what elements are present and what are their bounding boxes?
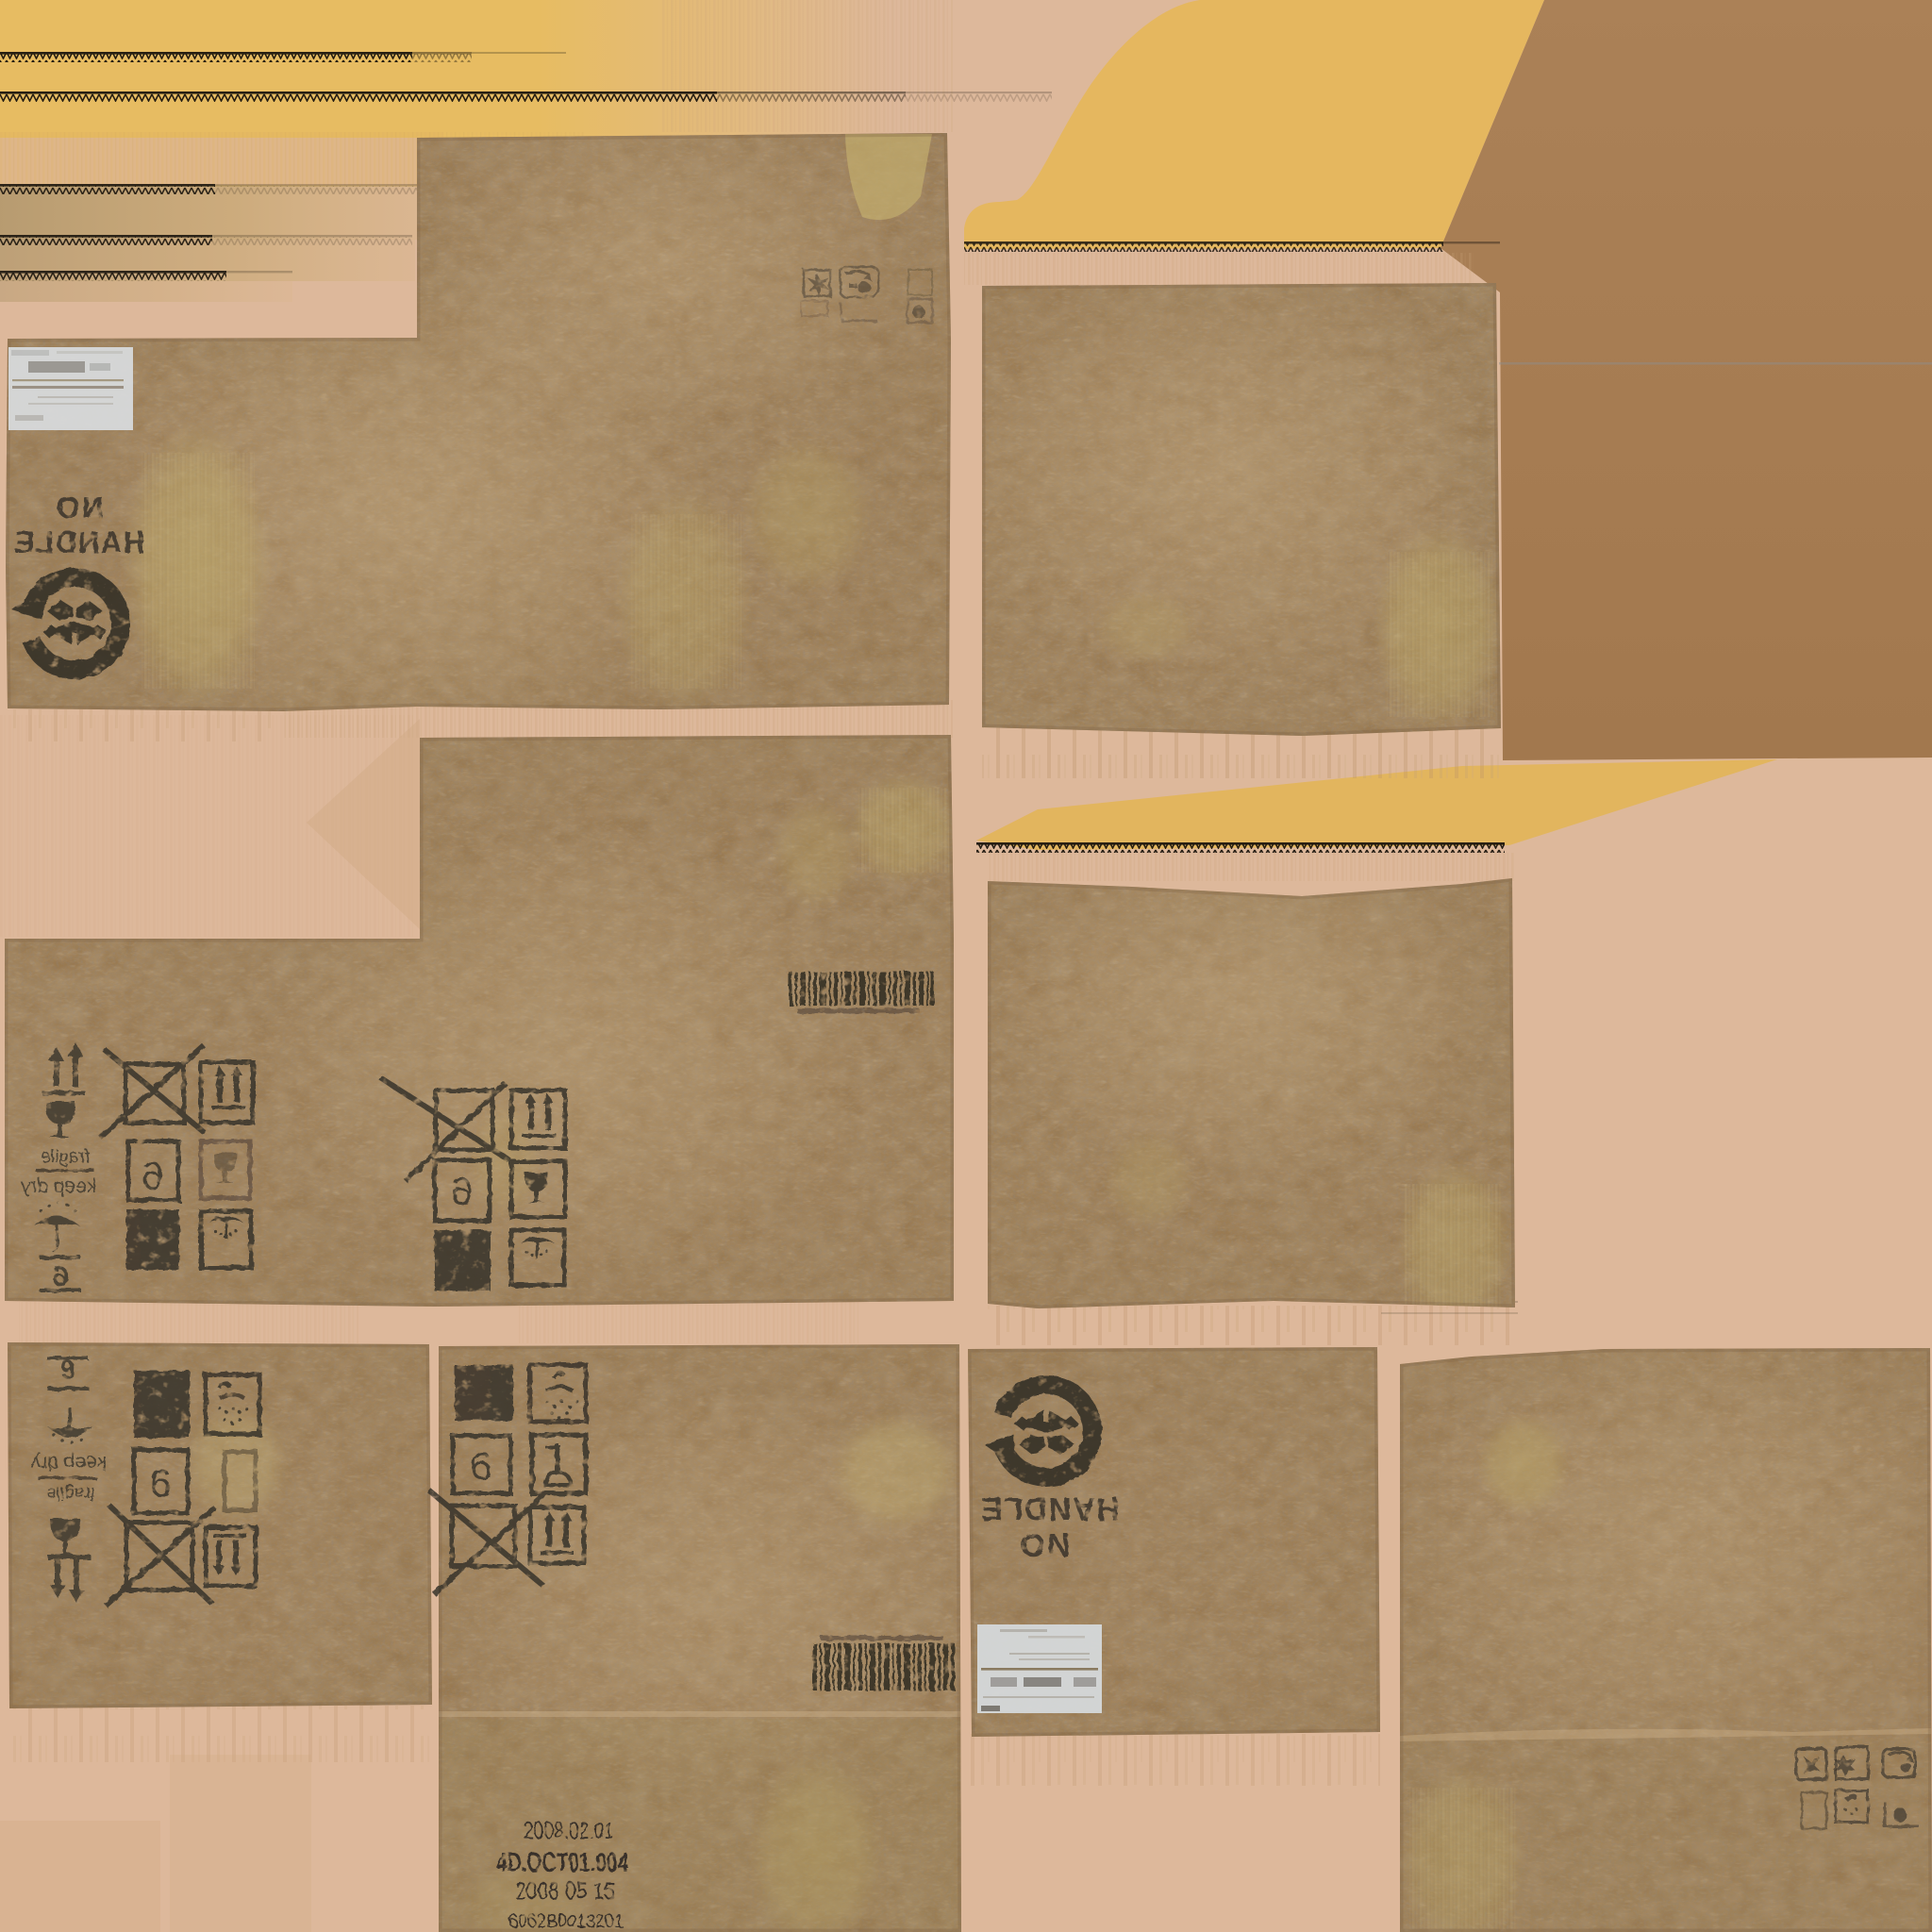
svg-text:keep dry: keep dry: [30, 1452, 107, 1474]
svg-text:NO: NO: [55, 491, 104, 525]
svg-text:6062B0013201: 6062B0013201: [508, 1911, 624, 1932]
svg-text:6: 6: [53, 1261, 69, 1292]
svg-text:HANDLE: HANDLE: [980, 1491, 1120, 1526]
svg-text:6: 6: [470, 1443, 491, 1488]
svg-text:6: 6: [142, 1153, 163, 1197]
svg-text:2008 05 15: 2008 05 15: [515, 1876, 615, 1905]
svg-text:fragile: fragile: [46, 1483, 95, 1503]
svg-text:6: 6: [149, 1460, 171, 1505]
svg-text:fragile: fragile: [41, 1147, 90, 1167]
svg-text:HANDLE: HANDLE: [13, 525, 144, 559]
svg-text:6: 6: [451, 1169, 473, 1213]
svg-text:6: 6: [60, 1355, 75, 1384]
svg-text:keep dry: keep dry: [20, 1175, 96, 1197]
svg-text:4D.OCT01.004: 4D.OCT01.004: [496, 1848, 628, 1878]
svg-text:2008.02.01: 2008.02.01: [524, 1818, 614, 1844]
svg-text:NO: NO: [1019, 1526, 1071, 1562]
